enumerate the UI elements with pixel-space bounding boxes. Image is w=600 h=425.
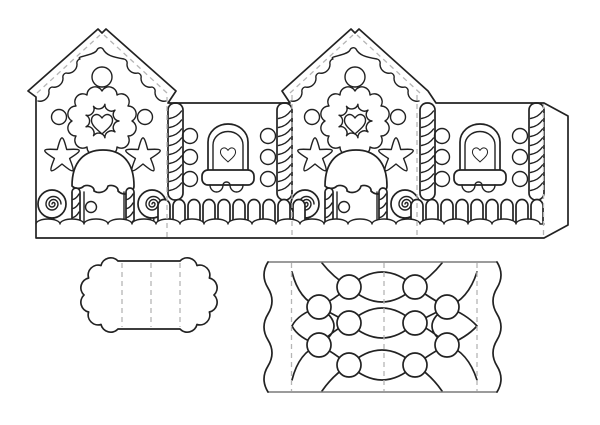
roof-panel [264, 262, 501, 392]
base-panel [81, 258, 217, 332]
walls-strip [28, 29, 568, 238]
template-sheet: Gingerbread house papercraft template [0, 0, 600, 425]
base-panel-outline [81, 258, 217, 332]
roof-panel-backing [264, 262, 501, 392]
